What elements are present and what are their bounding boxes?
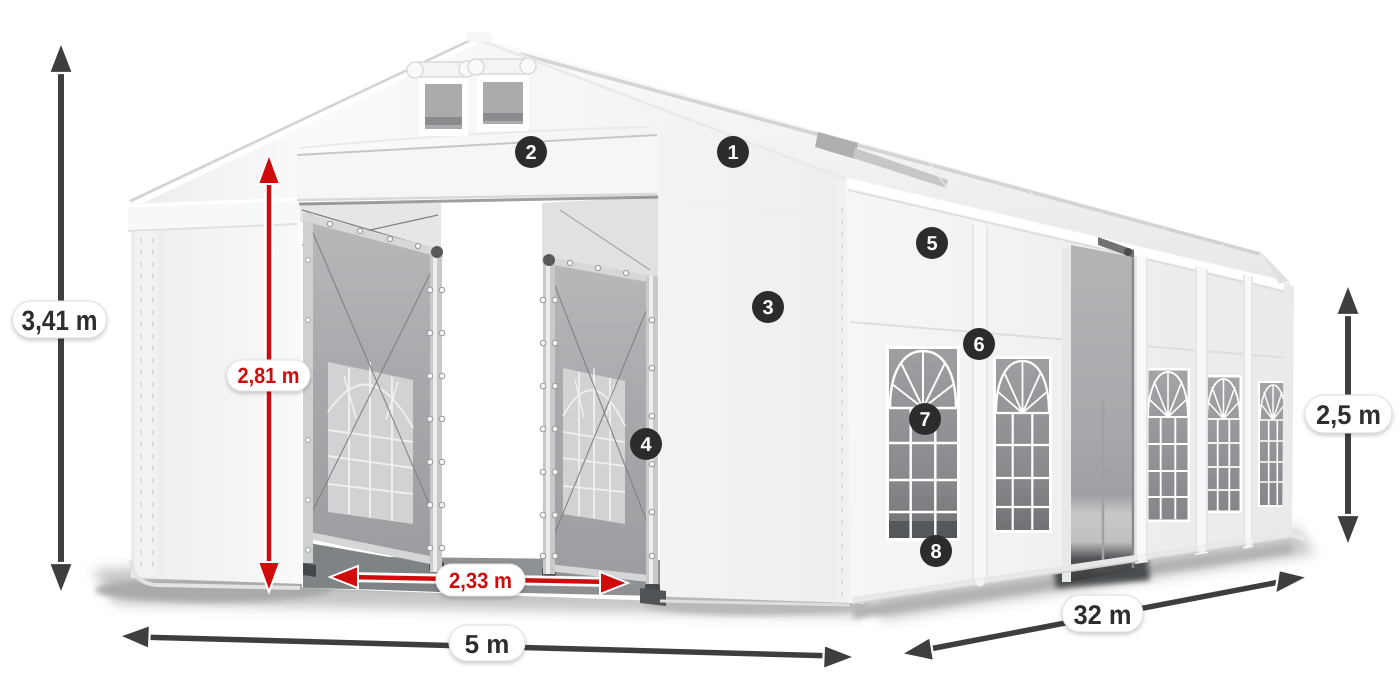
- svg-text:2: 2: [525, 142, 536, 164]
- svg-text:5: 5: [926, 233, 937, 255]
- svg-text:3: 3: [762, 297, 773, 319]
- svg-text:4: 4: [640, 434, 652, 456]
- svg-text:3,41 m: 3,41 m: [22, 305, 98, 336]
- svg-text:2,81 m: 2,81 m: [238, 363, 300, 388]
- svg-text:2,5 m: 2,5 m: [1316, 400, 1381, 430]
- svg-text:2,33 m: 2,33 m: [449, 568, 512, 593]
- svg-text:5 m: 5 m: [465, 629, 510, 659]
- svg-text:32 m: 32 m: [1074, 600, 1132, 630]
- svg-text:8: 8: [930, 541, 941, 563]
- svg-text:7: 7: [919, 409, 930, 431]
- svg-text:1: 1: [727, 142, 738, 164]
- svg-text:6: 6: [973, 334, 984, 356]
